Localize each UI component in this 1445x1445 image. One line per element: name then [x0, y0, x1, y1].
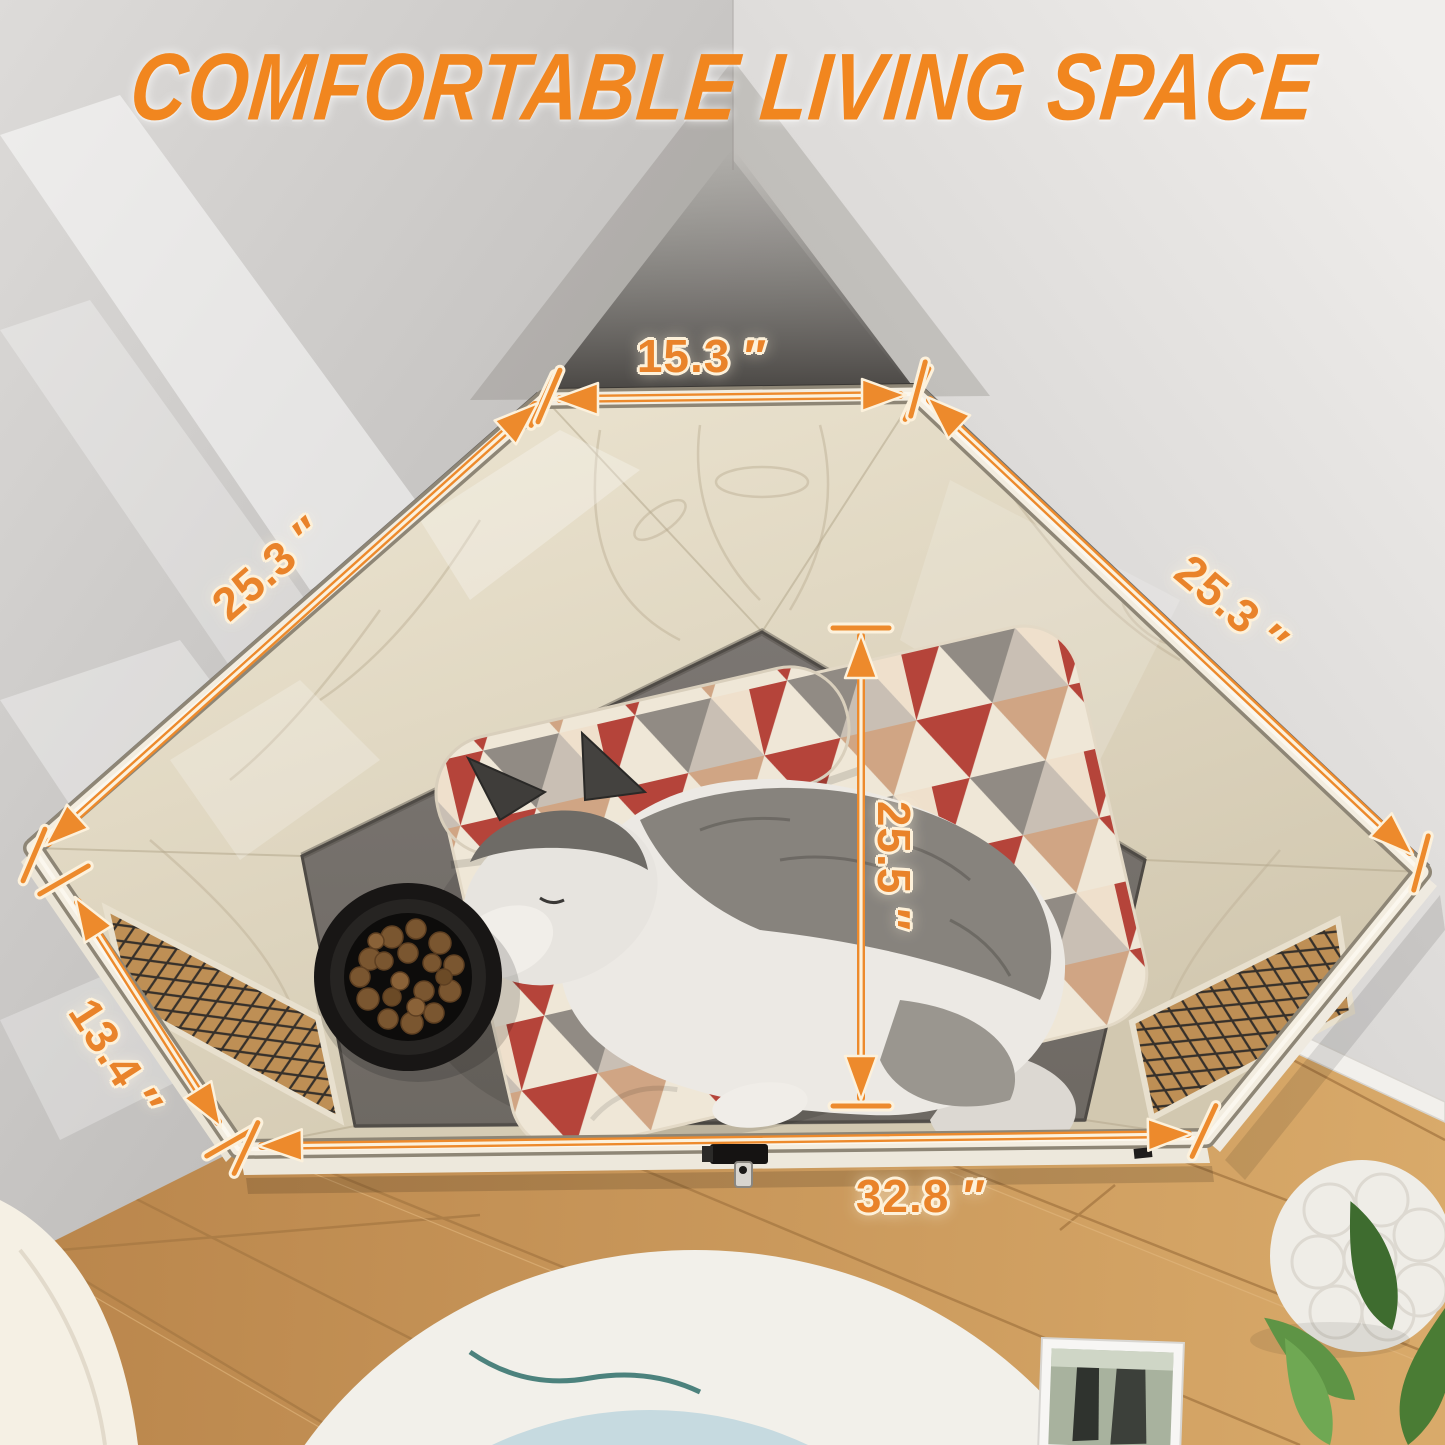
magazine	[1038, 1338, 1184, 1445]
product-dimension-image: COMFORTABLE LIVING SPACE 15.3 ″ 25.3 ″ 2…	[0, 0, 1445, 1445]
headline: COMFORTABLE LIVING SPACE	[125, 34, 1320, 143]
scene-illustration	[0, 0, 1445, 1445]
dim-front-width-label: 32.8 ″	[856, 1169, 986, 1223]
dim-inner-depth-label: 25.5 ″	[867, 801, 921, 931]
dim-back-width-label: 15.3 ″	[637, 329, 767, 383]
